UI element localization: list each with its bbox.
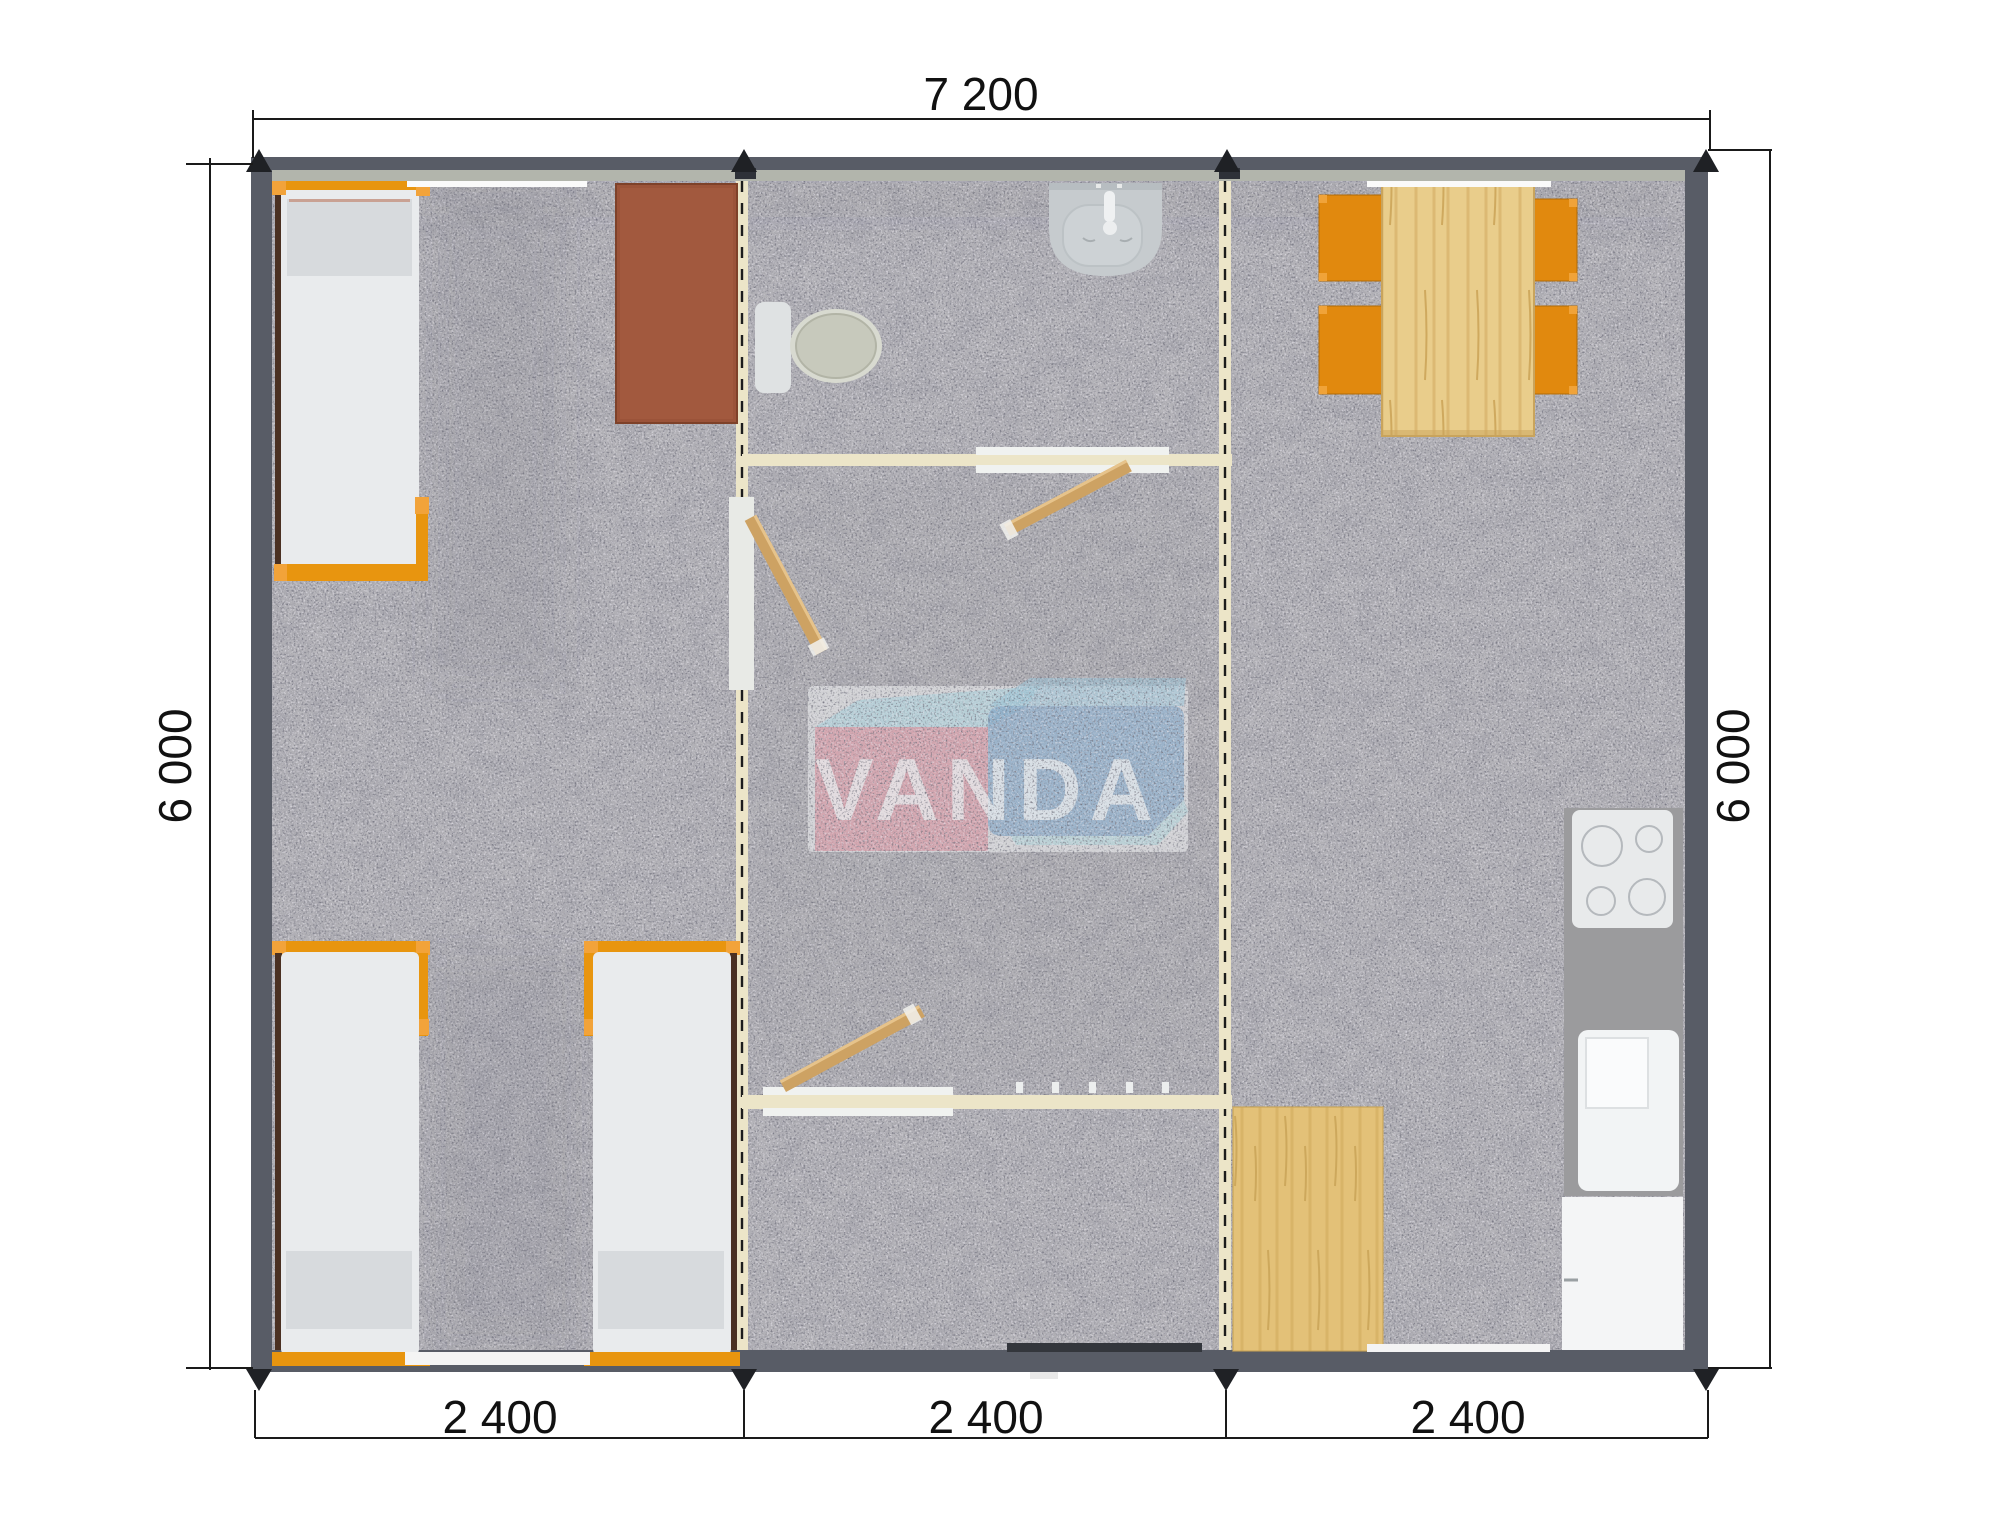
svg-text:6 000: 6 000 <box>1707 708 1759 823</box>
svg-text:2 400: 2 400 <box>928 1391 1043 1443</box>
svg-text:2 400: 2 400 <box>442 1391 557 1443</box>
svg-text:6 000: 6 000 <box>149 708 201 823</box>
svg-text:7 200: 7 200 <box>923 68 1038 120</box>
svg-text:2 400: 2 400 <box>1410 1391 1525 1443</box>
